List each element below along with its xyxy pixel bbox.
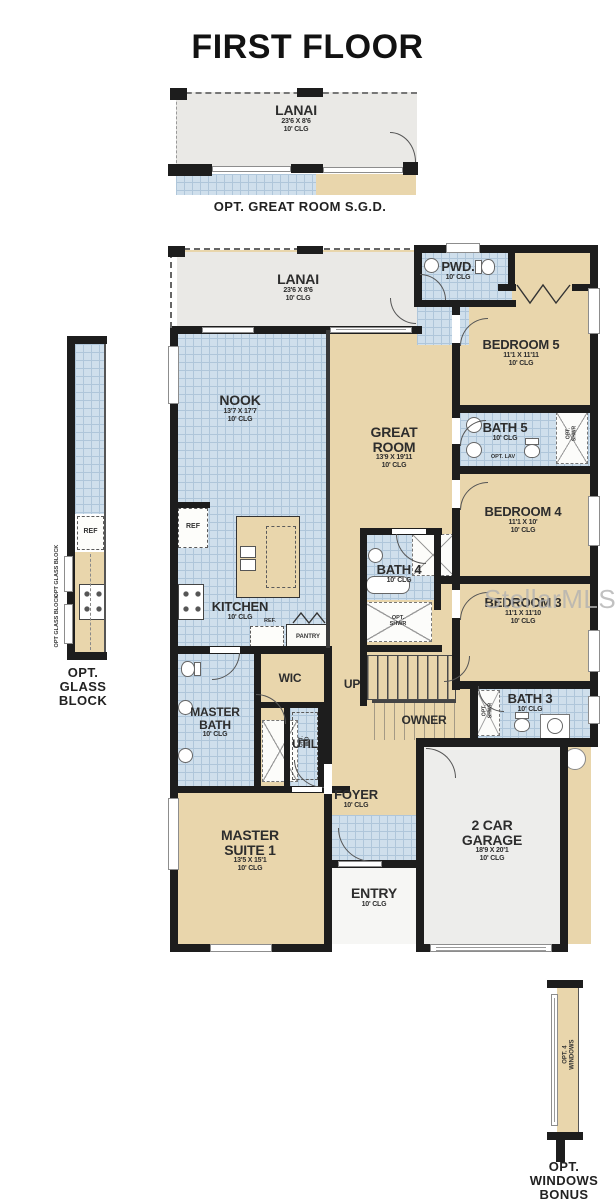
sink-icon [178, 748, 193, 763]
inset-caption-glass-block: OPT. GLASS BLOCK [38, 666, 128, 708]
wall [291, 164, 323, 173]
pantry-label: PANTRY [287, 634, 329, 641]
island-sink-icon [240, 559, 256, 571]
opt-shwr-label-bath5: OPT. SHWR [567, 420, 578, 448]
toilet-icon [179, 661, 201, 677]
wall [297, 246, 323, 254]
door-gap [452, 480, 460, 508]
porch-opening [332, 944, 416, 952]
wall [403, 162, 418, 175]
toilet-icon [514, 712, 530, 734]
door-gap [452, 590, 460, 618]
wall [360, 648, 367, 706]
room-label-util: UTIL [292, 738, 318, 751]
room-label-garage: 2 CAR GARAGE 18'9 X 20'1 10' CLG [462, 818, 522, 863]
glass-inset-tile [75, 344, 106, 514]
room-label-bath4: BATH 4 10' CLG [377, 563, 422, 585]
wall [360, 645, 442, 652]
wall [176, 502, 210, 508]
garage-door-line [436, 947, 546, 948]
room-label-bath5: BATH 5 10' CLG [483, 421, 528, 443]
wall [324, 646, 332, 952]
wall [168, 246, 185, 257]
room-label-wic: WIC [279, 672, 302, 685]
ref-label: REF [78, 528, 103, 536]
ref-box: REF [77, 516, 104, 550]
wall [436, 576, 598, 584]
toilet-icon [475, 259, 497, 275]
stair-rail [372, 700, 456, 703]
fridge-label: REF [179, 523, 207, 531]
room-label-kitchen: KITCHEN 10' CLG [212, 600, 268, 622]
window [168, 798, 179, 870]
glass-block-window [64, 604, 73, 644]
room-label-entry: ENTRY 10' CLG [351, 886, 397, 909]
stairs-up [366, 655, 456, 700]
inset-tile-floor [176, 174, 316, 195]
sink-icon [547, 718, 563, 734]
wall [416, 738, 598, 747]
room-label-pwd: PWD. 10' CLG [441, 260, 474, 282]
sink-icon [368, 548, 383, 563]
room-label-bedroom4: BEDROOM 4 11'1 X 10' 10' CLG [485, 505, 562, 535]
floor-plan-page: FIRST FLOOR LANAI 23'6 X 8'6 10' CLG OPT… [0, 0, 615, 1200]
room-label-foyer: FOYER 10' CLG [334, 788, 378, 810]
screen-wall-dash [170, 252, 172, 328]
inset-caption-great-room-sgd: OPT. GREAT ROOM S.G.D. [170, 200, 430, 214]
wall [434, 528, 441, 610]
room-label-lanai: LANAI 23'6 X 8'6 10' CLG [277, 272, 319, 303]
door-gap [292, 787, 322, 792]
door-gap [324, 764, 332, 794]
room-label-master-bath: MASTER BATH 10' CLG [190, 706, 239, 739]
bifold-door-icon [292, 612, 326, 624]
wall [452, 466, 598, 474]
inset-caption-windows-bonus: OPT. WINDOWS BONUS [518, 1160, 610, 1200]
room-label-bath3: BATH 3 10' CLG [508, 692, 553, 714]
room-label-nook: NOOK 13'7 X 17'7 10' CLG [219, 393, 260, 424]
door-gap [392, 529, 426, 534]
window [210, 944, 272, 952]
room-label-great-room: GREAT ROOM 13'9 X 19'11 10' CLG [371, 425, 418, 470]
wall [470, 681, 478, 743]
window [588, 288, 600, 334]
window [212, 166, 291, 172]
wall [360, 528, 367, 652]
bifold-door-icon [516, 283, 572, 305]
wall [174, 646, 330, 654]
door-gap [210, 647, 240, 653]
wall [547, 1132, 583, 1140]
room-label-owner: OWNER [402, 714, 447, 727]
opt-lav-label: OPT. LAV [488, 454, 518, 460]
wall [104, 344, 106, 652]
opt-window-line [554, 998, 555, 1122]
window [202, 327, 254, 333]
island-counter-dash [266, 526, 296, 588]
cooktop-icon [178, 584, 204, 620]
room-label-master-suite: MASTER SUITE 1 13'5 X 15'1 10' CLG [221, 828, 279, 873]
cooktop-icon [79, 584, 105, 620]
counter-dash [90, 554, 92, 650]
sliding-door-line [336, 329, 406, 330]
inset-lanai-label: LANAI 23'6 X 8'6 10' CLG [275, 103, 317, 134]
inset-tan-floor [316, 174, 416, 195]
wall [498, 284, 516, 291]
window [323, 167, 403, 173]
wall [170, 88, 187, 100]
door-gap [452, 418, 460, 444]
wall [452, 405, 598, 413]
stellar-mls-watermark: StellarMLS [484, 584, 615, 615]
room-label-bedroom5: BEDROOM 5 11'1 X 11'11 10' CLG [483, 338, 560, 368]
window [446, 243, 480, 253]
window [588, 696, 600, 724]
wall [560, 738, 568, 952]
opt-glass-block-label-2: OPT GLASS BLOCK [54, 591, 60, 651]
opt-4-windows-label: OPT. 4 WINDOWS [562, 1020, 575, 1090]
fridge-box: REF [178, 508, 208, 548]
window [168, 346, 179, 404]
wall [67, 652, 107, 660]
wall [547, 980, 583, 988]
room-label-up: UP [344, 678, 360, 691]
glass-block-window [64, 556, 73, 592]
garage-door-line [436, 950, 546, 951]
wall [67, 336, 107, 344]
wall [414, 300, 516, 307]
door-gap [452, 315, 460, 343]
wall [416, 738, 424, 952]
page-title: FIRST FLOOR [0, 28, 615, 67]
sink-icon [424, 258, 439, 273]
wall [168, 164, 212, 176]
window [588, 630, 600, 672]
front-door-gap [338, 861, 382, 867]
wall [297, 88, 323, 97]
opt-shwr-label-bath3: OPT. SHWR [483, 699, 494, 723]
sliding-door [330, 327, 412, 333]
opt-shwr-label-bath4: OPT. SHWR [384, 615, 412, 627]
island-sink-icon [240, 546, 256, 558]
window [588, 496, 600, 546]
wall [326, 330, 330, 648]
wall [415, 245, 598, 253]
